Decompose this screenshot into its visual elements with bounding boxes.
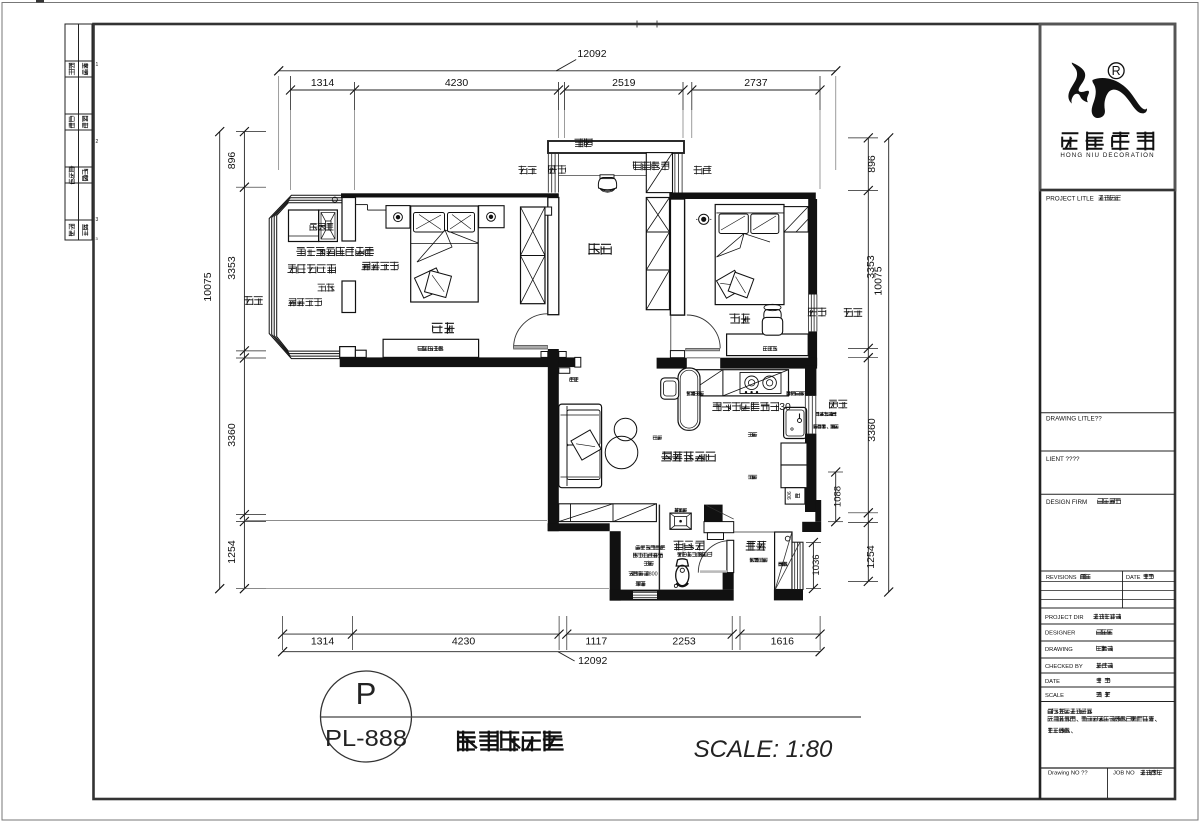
svg-text:3: 3 [96,217,99,223]
svg-text:2: 2 [96,139,99,145]
svg-text:SCALE: SCALE [1045,693,1064,699]
svg-text:1314: 1314 [311,636,335,648]
svg-text:12092: 12092 [577,48,606,60]
svg-text:4230: 4230 [445,77,469,89]
svg-text:2253: 2253 [672,636,696,648]
svg-text:DATE: DATE [1045,679,1060,685]
svg-text:3360: 3360 [866,418,878,442]
svg-text:DESIGN FIRM: DESIGN FIRM [1046,499,1087,506]
svg-text:3360: 3360 [226,423,238,447]
svg-text:DESIGNER: DESIGNER [1045,631,1075,637]
svg-text:30: 30 [779,402,791,413]
svg-text:Drawing NO ??: Drawing NO ?? [1048,771,1088,777]
svg-text:R: R [1112,64,1121,78]
svg-text:1616: 1616 [771,636,795,648]
svg-text:3353: 3353 [226,256,238,280]
svg-text:DRAWING LITLE??: DRAWING LITLE?? [1046,416,1102,423]
svg-text:P: P [356,676,377,711]
svg-text:1254: 1254 [226,540,238,564]
svg-text:1088: 1088 [833,486,844,507]
svg-text:896: 896 [226,152,238,170]
svg-text:2737: 2737 [744,77,768,89]
svg-text:LIENT ????: LIENT ???? [1046,456,1080,463]
svg-text:1314: 1314 [311,77,335,89]
svg-text:4230: 4230 [452,636,476,648]
svg-text:10075: 10075 [202,272,214,301]
svg-text:DATE: DATE [1126,575,1141,581]
svg-text:PROJECT DIR: PROJECT DIR [1045,615,1084,621]
svg-text:REVISIONS: REVISIONS [1046,575,1077,581]
svg-text:800: 800 [649,571,658,577]
svg-text:906: 906 [787,491,793,500]
svg-text:2519: 2519 [612,77,636,89]
svg-text:DRAWING: DRAWING [1045,647,1073,653]
svg-text:1117: 1117 [585,636,607,648]
svg-text:PROJECT LITLE: PROJECT LITLE [1046,196,1094,203]
svg-text:PL-888: PL-888 [325,725,407,751]
svg-text:SCALE: 1:80: SCALE: 1:80 [694,736,833,763]
svg-text:12092: 12092 [578,655,607,667]
svg-text:JOB NO: JOB NO [1113,771,1135,777]
svg-text:1036: 1036 [811,554,822,575]
svg-text:3353: 3353 [865,255,877,279]
svg-text:HONG NIU DECORATION: HONG NIU DECORATION [1060,152,1154,159]
svg-text:1254: 1254 [865,545,877,569]
svg-text:1: 1 [96,62,99,68]
svg-text:896: 896 [866,155,878,173]
svg-text:CHECKED BY: CHECKED BY [1045,664,1083,670]
